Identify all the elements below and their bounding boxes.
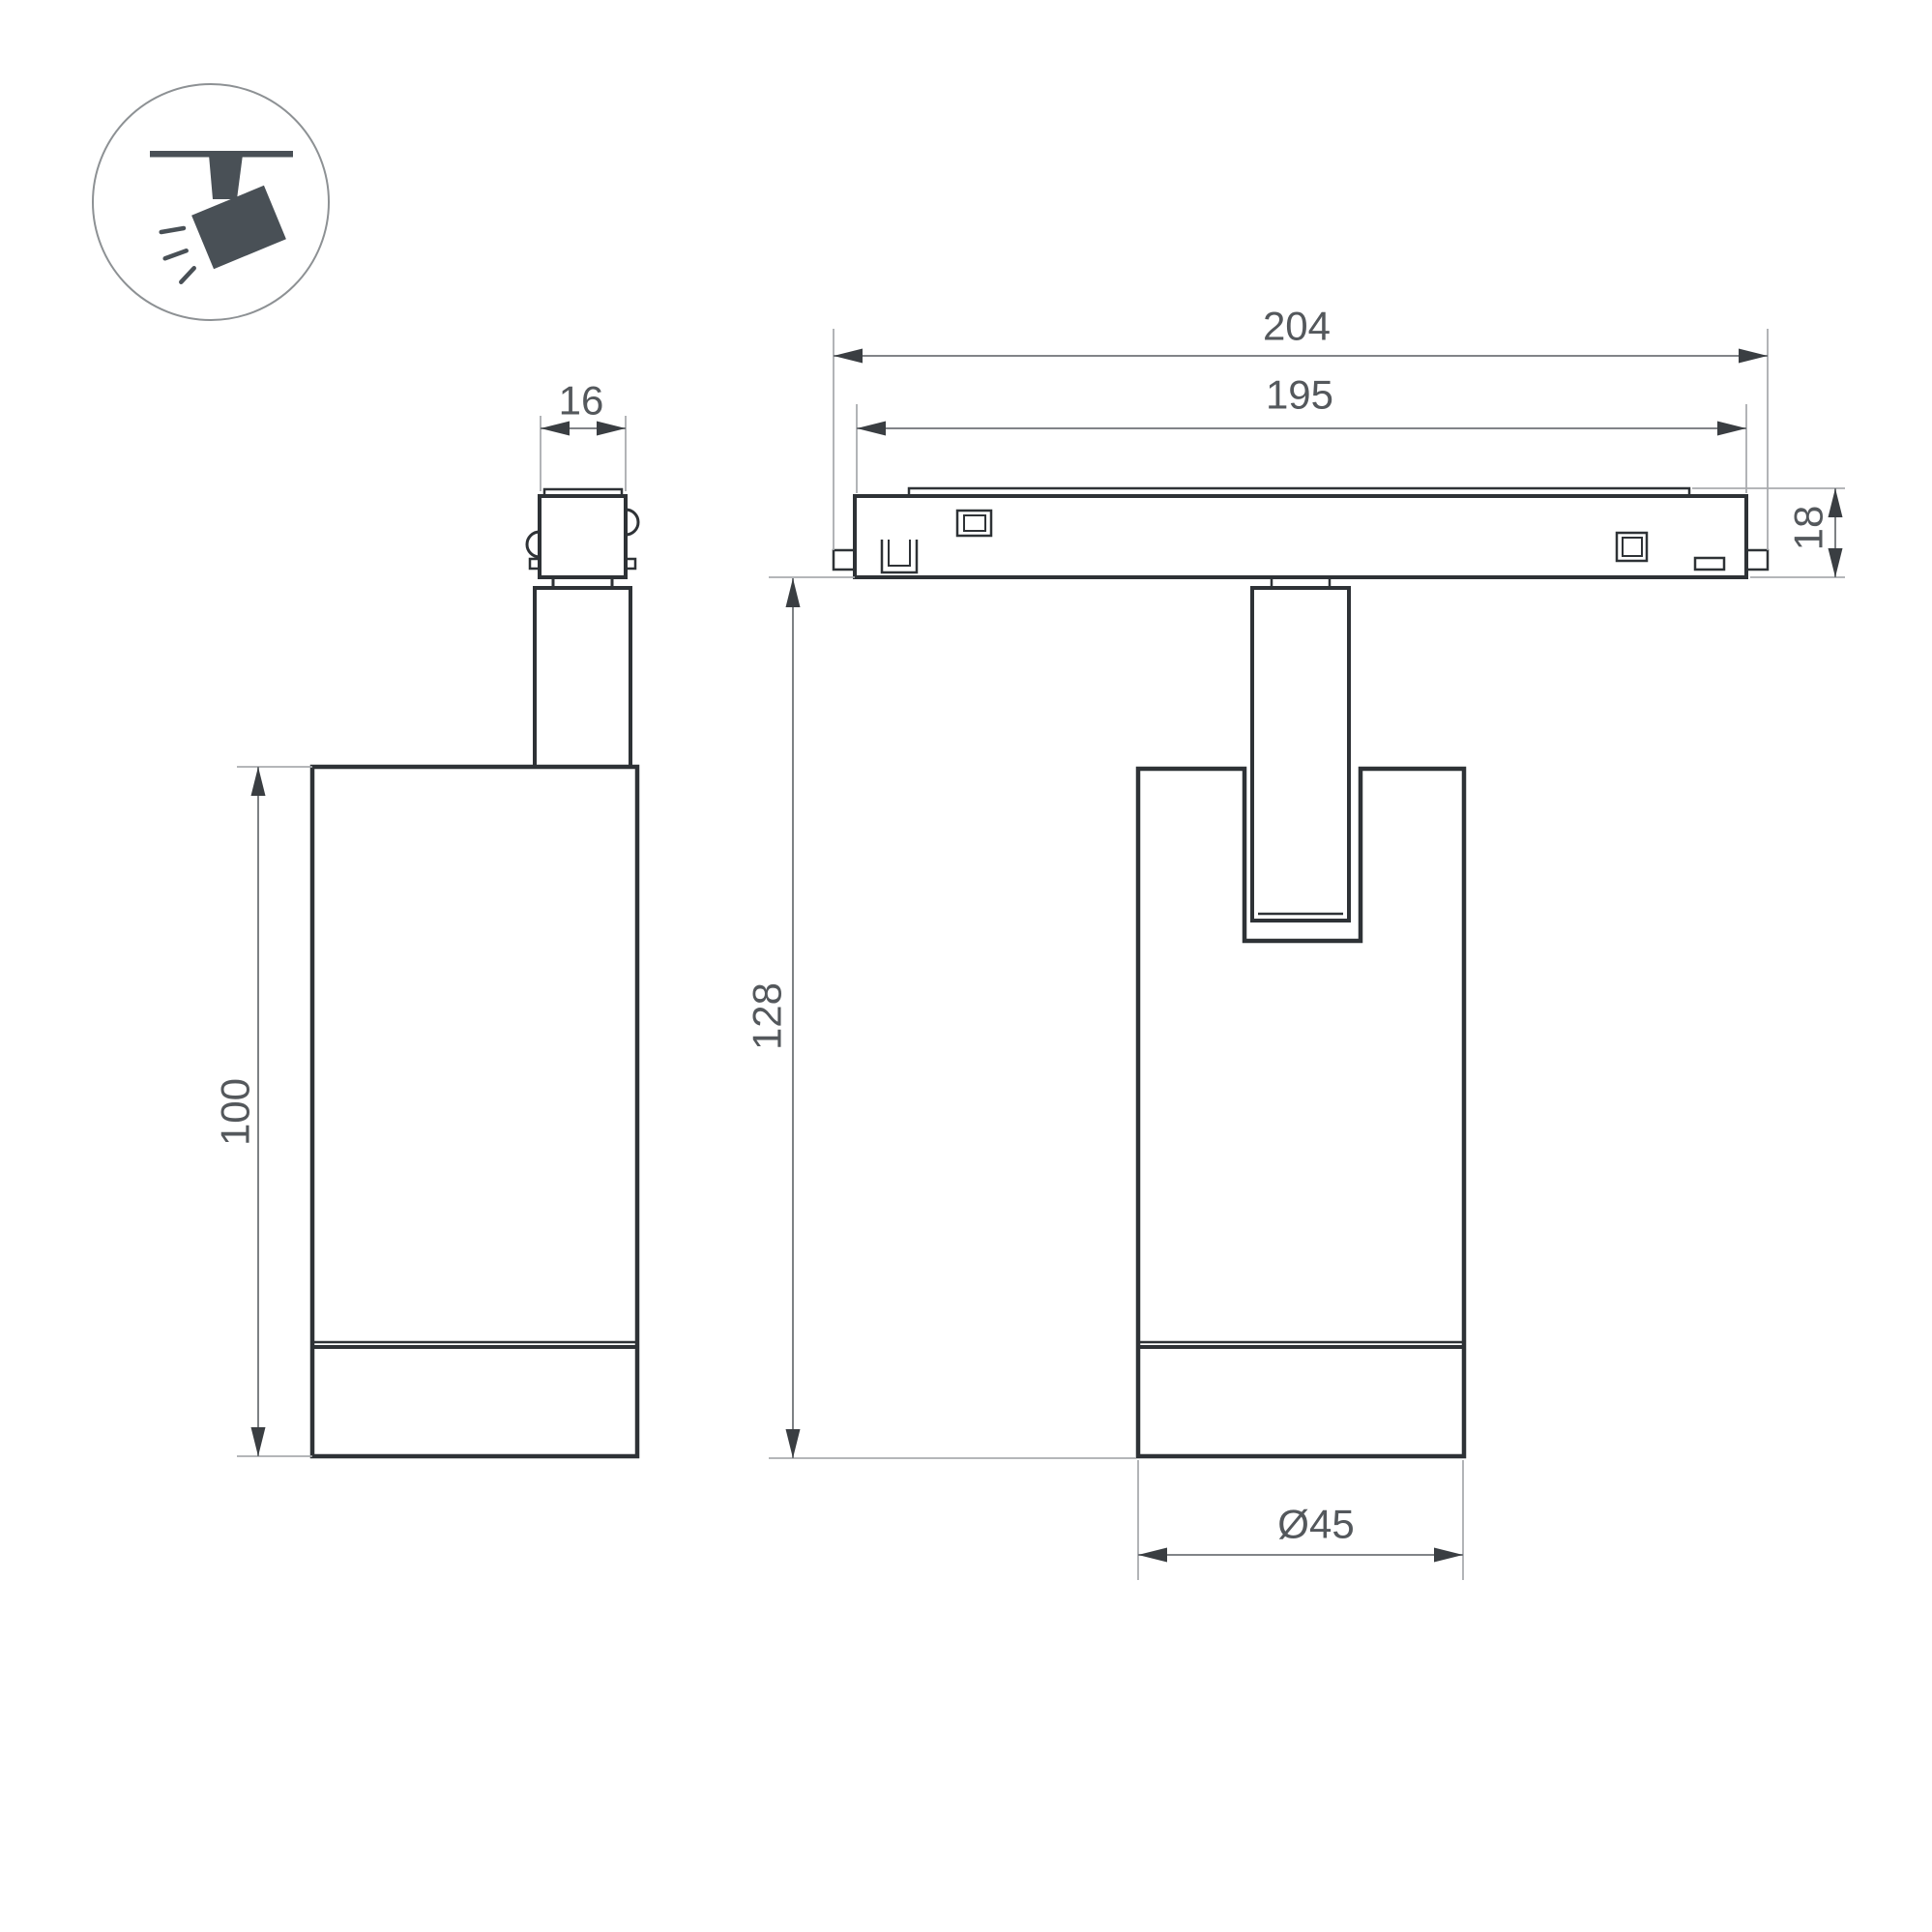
arrowhead-right-icon — [1717, 422, 1746, 436]
arrowhead-right-icon — [1434, 1548, 1463, 1563]
dimension-adapter-width: 16 — [541, 378, 626, 492]
track-end-tab-left — [834, 550, 855, 570]
arrowhead-left-icon — [834, 349, 863, 364]
arrowhead-up-icon — [786, 578, 801, 607]
arrowhead-up-icon — [251, 767, 266, 796]
dimension-label: 100 — [213, 1078, 258, 1146]
dimension-label: 18 — [1786, 506, 1831, 551]
side-stem — [535, 588, 630, 767]
side-body — [312, 767, 637, 1456]
arrowhead-right-icon — [1739, 349, 1768, 364]
arrowhead-right-icon — [597, 422, 626, 436]
dimension-label: 204 — [1263, 304, 1331, 349]
dimension-label: 128 — [745, 982, 790, 1050]
dimension-body-diameter: Ø45 — [1138, 1460, 1463, 1580]
side-track-adapter — [540, 496, 626, 577]
icon-stem — [209, 155, 243, 199]
dimension-label: 195 — [1266, 372, 1333, 418]
drawing-canvas: 16 100 204 195 — [0, 0, 1932, 1932]
dimension-track-inner-length: 195 — [857, 372, 1746, 494]
dimension-overall-height: 128 — [745, 577, 1137, 1458]
arrowhead-down-icon — [786, 1429, 801, 1458]
arrowhead-left-icon — [541, 422, 570, 436]
track-end-tab-right — [1746, 550, 1768, 570]
arrowhead-down-icon — [251, 1427, 266, 1456]
arrowhead-left-icon — [1138, 1548, 1167, 1563]
dimension-label: 16 — [559, 378, 604, 424]
front-view — [834, 488, 1768, 1456]
icon-circle — [93, 84, 329, 320]
arrowhead-left-icon — [857, 422, 886, 436]
dimension-label: Ø45 — [1277, 1502, 1354, 1547]
arrowhead-down-icon — [1829, 548, 1843, 577]
dimension-body-height: 100 — [213, 767, 313, 1456]
track-spotlight-icon — [93, 84, 329, 320]
technical-drawing: 16 100 204 195 — [0, 0, 1932, 1932]
side-view — [312, 489, 638, 1456]
front-stem — [1252, 588, 1349, 921]
